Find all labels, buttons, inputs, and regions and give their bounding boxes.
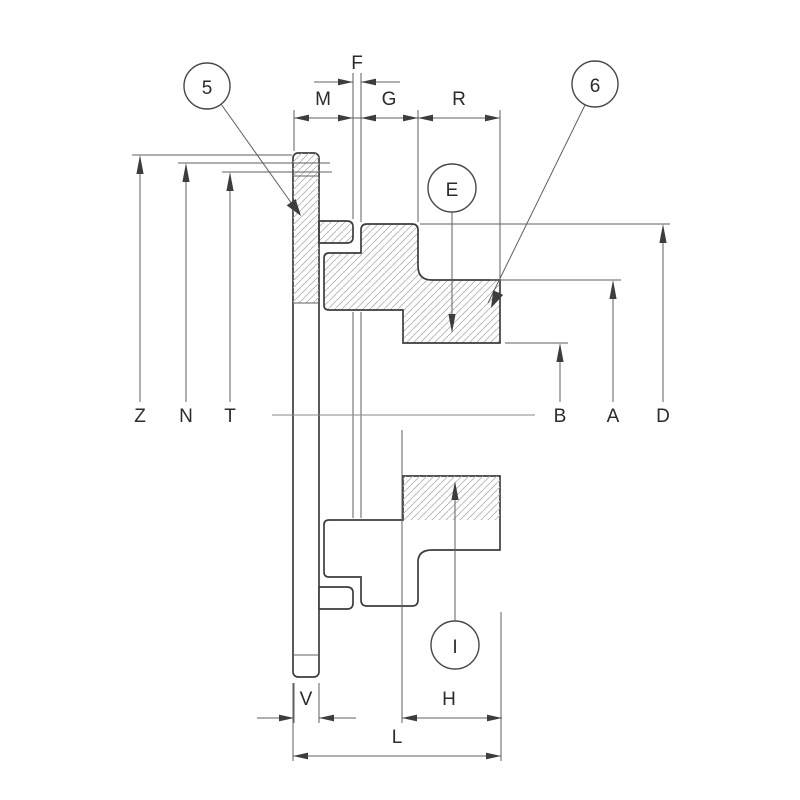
dim-label-l: L [392,727,403,748]
dim-label-z: Z [134,406,146,427]
spigot-band-lower [319,587,353,609]
balloon-6-group: 6 [486,61,618,310]
dim-label-f: F [351,53,363,74]
ref-label-i: I [452,637,457,658]
hub-lower-hatch-block [403,476,500,520]
dim-label-a: A [607,406,620,427]
dim-label-m: M [315,89,331,110]
spigot-band-upper [319,221,353,243]
dim-label-r: R [452,89,466,110]
dim-label-d: D [656,406,670,427]
balloon-5-group: 5 [184,63,305,219]
drawing-canvas: F M G R Z N T B A [0,0,800,800]
dim-label-n: N [179,406,193,427]
dim-label-t: T [224,406,236,427]
balloon-5-label: 5 [202,78,213,99]
ref-label-e: E [446,180,459,201]
dim-label-v: V [300,689,313,710]
technical-drawing-page: F M G R Z N T B A [0,0,800,800]
dim-label-h: H [442,689,456,710]
dim-label-g: G [382,89,397,110]
balloon-6-label: 6 [590,76,601,97]
dim-label-b: B [554,406,567,427]
